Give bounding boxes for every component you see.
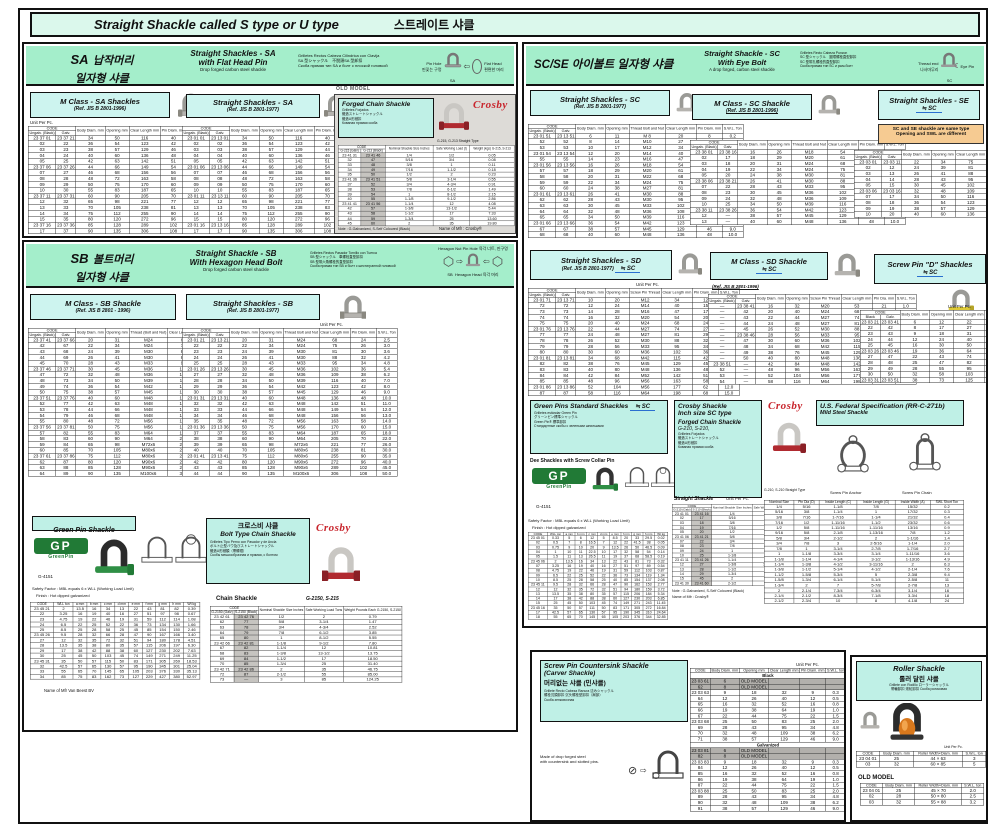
sd-table: CODEBody Diam. mmOpening mmScrew Pin Thr… <box>528 288 696 396</box>
sa-mclass-header: M Class - SA Shackles (Ref. JIS B 2801-1… <box>30 92 170 118</box>
section-sa: SA 납작머리 일자형 샤클 Straight Shackles - SAwit… <box>22 42 518 238</box>
finish-label: Finish : Hot dipped galvanized <box>532 525 586 530</box>
shackle-icon <box>444 50 462 73</box>
greenpin-bolt-table: CODEWLL tona mmb mmc mmd mme mmf mmg mmh… <box>30 602 200 680</box>
shackle-icon <box>465 251 481 271</box>
arrow-right-icon: ⇨ <box>456 257 463 266</box>
unit-label: Unit Per Pc. <box>796 662 819 667</box>
us-federal-table: Nominal SizePin Dia (D)Inside Length (C)… <box>764 500 964 604</box>
shackle-icon <box>678 250 702 281</box>
flat-head-pin-icon <box>472 59 482 74</box>
us-federal-box: U.S. Federal Specification (RR-C-271b) M… <box>816 400 964 426</box>
arrow-right-icon: ⇨ <box>640 766 647 775</box>
gp-model-label: G-4151 <box>536 504 551 509</box>
countersink-title-box: Screw Pin Countersink Shackle (Carver Sh… <box>540 660 688 722</box>
shackle-green-pin-icon <box>592 464 618 497</box>
roller-table: CODEBody Diam. mmRoller Width×Diam. mmS.… <box>856 751 986 768</box>
screw-pin-anchor-diagram-icon <box>834 432 872 481</box>
vanbeest-mfr-label: Name of Mfr Van Beest BV <box>44 688 94 693</box>
msd-ref: (Ref. JIS B 2801-1996) <box>712 284 759 289</box>
section-roller: Roller Shackle 롤러 달린 샤클 Grillete con Rod… <box>850 655 988 822</box>
sd-header: Straight Shackles - SD (Ref. JIS B 2801-… <box>530 250 672 280</box>
unit-label: Unit Per Pc. <box>636 282 659 287</box>
chain-model-label: G-2150, S-215 <box>306 596 339 602</box>
se-note-box: SC and SE shackle are same type Opening … <box>878 124 984 144</box>
crosby-mfr: Name of Mfr : Crosby® <box>672 595 709 599</box>
forged-chain-shackle-box: Forged Chain Shackle Grilletes Forjados … <box>338 98 434 138</box>
sa-mclass-table: CODEBody Diam. mmOpening mmClear Length … <box>28 126 178 234</box>
gp-model-label: G-4151 <box>38 574 53 579</box>
hexagon-nut-icon <box>443 256 454 267</box>
sc-table: CODEBody Diam. mmOpening mmThread Bolt a… <box>528 124 678 238</box>
section-countersink: Screw Pin Countersink Shackle (Carver Sh… <box>530 650 846 822</box>
sb-straight-header: Straight Shackles - SB (Ref. JIS B 2801-… <box>186 294 320 320</box>
sa-band-title: Straight Shackles - SAwith Flat Head Pin… <box>174 49 292 72</box>
arrow-left-icon: ⇦ <box>483 257 490 266</box>
se-table: CODEBody Diam. mmOpening mmClear Length … <box>854 150 988 217</box>
msd-header: M Class - SD Shackle ≒ SC <box>710 252 828 280</box>
shackle-hex-bolt-icon <box>340 292 366 325</box>
msc-table: CODEBody Diam. mmOpening mmThread Bolt a… <box>690 140 842 225</box>
sa-band-code: SA 납작머리 일자형 샤클 <box>36 51 168 87</box>
sa-mfr-label: Name of Mfr : Crosby® <box>439 226 482 231</box>
section-sb: SB 볼트머리 일자형 샤클 Straight Shackle - SBWith… <box>22 240 518 732</box>
sa-band-langs: Grilletes Rectos Cabeza Cilindrica con C… <box>298 53 424 69</box>
countersink-table: CODEBody Diam. mmOpening mmClear Length … <box>690 668 842 812</box>
sa-crosby-note: Note : G-Galvanized, S-Self Coloured (Bl… <box>338 227 410 231</box>
sa-crosby-table: CODENominal Shackle Size InchesSafe Work… <box>338 145 514 226</box>
roller-title-box: Roller Shackle 롤러 달린 샤클 Grillete con Rod… <box>856 661 982 701</box>
sa-straight-table: CODEBody Diam. mmOpening mmClear Length … <box>182 126 332 234</box>
sb-band-langs: Grilletes Rectos Pasador Tornillo con Tu… <box>310 251 436 269</box>
sb-mclass-header: M Class - SB Shackle (Ref. JIS B 2801 - … <box>30 294 176 320</box>
roller-old-model-label: OLD MODEL <box>858 775 894 781</box>
sb-band-code: SB 볼트머리 일자형 샤클 <box>36 250 168 286</box>
shackle-red-pin-icon <box>322 542 360 591</box>
roller-shackle-photo-icon <box>886 703 928 745</box>
spd-table: CODEBody Diam. mmOpening mmClear Length … <box>860 310 988 383</box>
crosby-inch-caption: G-210, S-210 Straight Type <box>764 488 805 492</box>
section-scse: SC/SE 아이볼트 일자형 샤클 Straight Shackle - SCW… <box>522 42 988 628</box>
shackle-outline-diagram-icon <box>140 530 174 573</box>
roller-old-table: CODEBody Diam. mmRoller Width×Diam. mmS.… <box>860 783 984 805</box>
arrow-left-icon: ⇦ <box>464 62 471 71</box>
greenpin-logo: GP GreenPin <box>532 468 586 490</box>
page-banner: Straight Shackle called S type or U type… <box>30 12 980 37</box>
se-header: Straight Shackles - SE ≒ SC <box>878 90 980 120</box>
countersink-shackle-diagram-icon <box>650 744 686 790</box>
unit-label: Unit Per Pc. <box>320 322 343 327</box>
shackle-outline-diagram-icon <box>624 462 650 495</box>
shackle-green-pin-icon <box>94 534 134 585</box>
sb-straight-table: CODEBody Diam. mmOpening mmThread Bolt a… <box>182 328 334 477</box>
hexagon-head-icon <box>492 256 503 267</box>
sc-header: Straight Shackles - SC (Ref. JIS B 2801-… <box>530 90 670 116</box>
shackle-eye-pin-icon <box>940 50 958 73</box>
shackle-icon <box>818 92 840 120</box>
crosby-inch-box: Crosby Shackle Inch size SC type Forged … <box>674 400 762 498</box>
sa-band-diagram: Pin Hole핀꽂는 구멍 SA ⇦ Flat Head편편한 머리 <box>422 50 516 83</box>
safety-factor-label: Safety Factor : MBL equals 6 x WLL (Work… <box>528 518 678 523</box>
banner-title: Straight Shackle called S type or U type <box>94 17 339 32</box>
crosby-note: Note : G-Galvanized, S-Self Coloured (Bl… <box>672 589 744 593</box>
safety-factor-label: Safety Factor : MBL equals 6 x WLL (Work… <box>32 586 192 591</box>
sa-crosby-panel: Forged Chain Shackle Grilletes Forjados … <box>334 94 516 234</box>
sb-band-diagram: Hexagon Nut Pin Hole 육각 너트, 핀구멍 ⇨ ⇦ SB H… <box>430 246 516 277</box>
sa-band: SA 납작머리 일자형 샤클 Straight Shackles - SAwit… <box>26 46 514 86</box>
greenpin-logo: GP GreenPin <box>34 538 88 560</box>
greenpins-standard-box: Green Pins Standard Shackles ≒ SC Grille… <box>530 400 668 454</box>
slotted-pin-icon: ⊘ <box>628 764 637 777</box>
sa-straight-header: Straight Shackles - SA (Ref. JIS B 2801-… <box>186 94 320 118</box>
anchor-caption: Screw Pin Anchor <box>830 490 862 495</box>
banner-title-korean: 스트레이트 샤클 <box>394 16 475 33</box>
unit-label: Unit Per Pc. <box>30 120 53 125</box>
scse-band-code: SC/SE 아이볼트 일자형 샤클 <box>534 56 684 72</box>
crosby-logo: Crosby <box>473 99 508 111</box>
straight-shackle-label: Straight Shackle <box>674 496 713 502</box>
chain-caption: Screw Pin Chain <box>902 490 932 495</box>
sa-crosby-caption: G-215, G-213 Straight Type <box>437 139 479 143</box>
crosby-logo: Crosby <box>768 400 803 412</box>
scse-band-diagram: Thread end나사마무리 SC Eye Pin <box>918 50 988 83</box>
shackle-red-pin-icon <box>772 418 806 461</box>
shackle-outline-diagram-icon <box>650 462 676 495</box>
greenpin-standard-table: CODEWLL tona mmb mmc mmd mme mmf mmg mmh… <box>528 532 668 620</box>
msd-table: CODEBody Diam. mmOpening mmScrew Pin Thr… <box>708 294 870 385</box>
scse-band-langs: Grilletes Recto Cabeza Punzon SC 型シャックル … <box>800 51 918 69</box>
unit-label: Unit Per Pc. <box>948 304 971 309</box>
shackle-outline-diagram-icon <box>174 530 208 573</box>
shackle-red-pin-icon <box>439 99 469 137</box>
bolt-type-chain-box: 크로스비 샤클 Bolt Type Chain Shackle Grillete… <box>206 518 310 584</box>
msc-header: M Class - SC Shackle (Ref. JIS B 2801-19… <box>692 94 812 120</box>
scse-band-title: Straight Shackle - SCWith Eye Bolt A dro… <box>688 49 796 72</box>
spd-header: Screw Pin "D" Shackles ≒ SC <box>874 254 986 284</box>
shackle-icon <box>860 709 880 735</box>
shackle-catalog-page: Straight Shackle called S type or U type… <box>0 0 1000 831</box>
unit-label: Unit Per Pc. <box>944 745 963 749</box>
sb-band: SB 볼트머리 일자형 샤클 Straight Shackle - SBWith… <box>26 244 514 288</box>
scse-band: SC/SE 아이볼트 일자형 샤클 Straight Shackle - SCW… <box>526 46 984 86</box>
old-model-label: OLD MODEL <box>336 86 371 92</box>
countersink-note: Made of drop forged steel with countersi… <box>540 754 630 764</box>
sb-mclass-table: CODEBody Diam. mmOpening mmThread (Bolt … <box>28 328 180 477</box>
chain-shackle-label: Chain Shackle <box>216 596 257 602</box>
sb-band-title: Straight Shackle - SBWith Hexagon Head B… <box>172 249 300 272</box>
unit-label: Unit Per Pc. <box>726 496 749 501</box>
screw-pin-chain-diagram-icon <box>906 430 944 479</box>
chain-shackle-table: CODENominal Shackle Size InchesSafe Work… <box>210 606 360 682</box>
crosby-logo: Crosby <box>316 522 351 534</box>
greenpin-shackle-box: Green Pin Shackle <box>32 516 136 531</box>
finish-label: Finish : Hot dipped galvanized <box>36 593 90 598</box>
shackle-icon <box>834 250 860 283</box>
crosby-inch-table: CODENominal Shackle Size InchesSafe Work… <box>672 504 762 586</box>
